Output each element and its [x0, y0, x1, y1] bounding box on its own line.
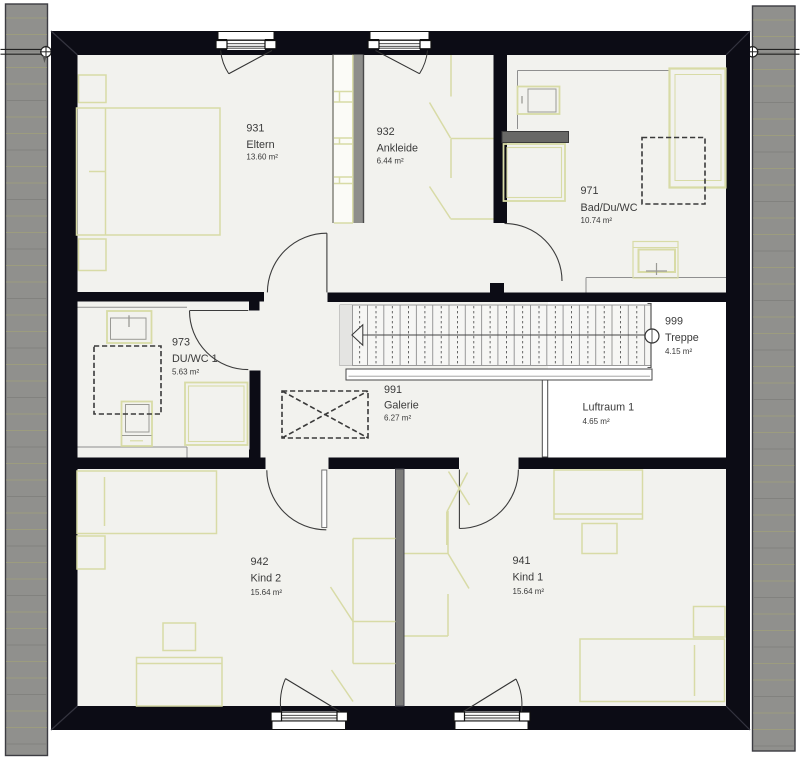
- svg-text:6.44 m²: 6.44 m²: [377, 156, 404, 165]
- svg-text:Luftraum 1: Luftraum 1: [583, 402, 635, 414]
- svg-text:13.60 m²: 13.60 m²: [246, 152, 278, 161]
- svg-text:10.74 m²: 10.74 m²: [581, 216, 613, 225]
- svg-text:942: 942: [251, 556, 269, 568]
- svg-text:941: 941: [513, 555, 531, 567]
- svg-text:4.65 m²: 4.65 m²: [583, 417, 610, 426]
- svg-text:Kind 1: Kind 1: [513, 572, 544, 584]
- svg-text:Eltern: Eltern: [246, 139, 274, 151]
- svg-text:991: 991: [384, 384, 402, 396]
- svg-text:5.63 m²: 5.63 m²: [172, 367, 199, 376]
- svg-text:Galerie: Galerie: [384, 400, 419, 412]
- svg-text:999: 999: [665, 316, 683, 328]
- svg-text:Bad/Du/WC: Bad/Du/WC: [581, 202, 638, 214]
- svg-text:931: 931: [246, 123, 264, 135]
- svg-text:6.27 m²: 6.27 m²: [384, 414, 411, 423]
- svg-text:971: 971: [581, 185, 599, 197]
- svg-text:Ankleide: Ankleide: [377, 142, 418, 154]
- svg-text:932: 932: [377, 126, 395, 138]
- svg-text:4.15 m²: 4.15 m²: [665, 347, 692, 356]
- svg-text:DU/WC 1: DU/WC 1: [172, 353, 218, 365]
- svg-text:973: 973: [172, 336, 190, 348]
- svg-text:15.64 m²: 15.64 m²: [251, 588, 283, 597]
- svg-text:15.64 m²: 15.64 m²: [513, 587, 545, 596]
- svg-text:Treppe: Treppe: [665, 332, 699, 344]
- svg-text:Kind 2: Kind 2: [251, 573, 282, 585]
